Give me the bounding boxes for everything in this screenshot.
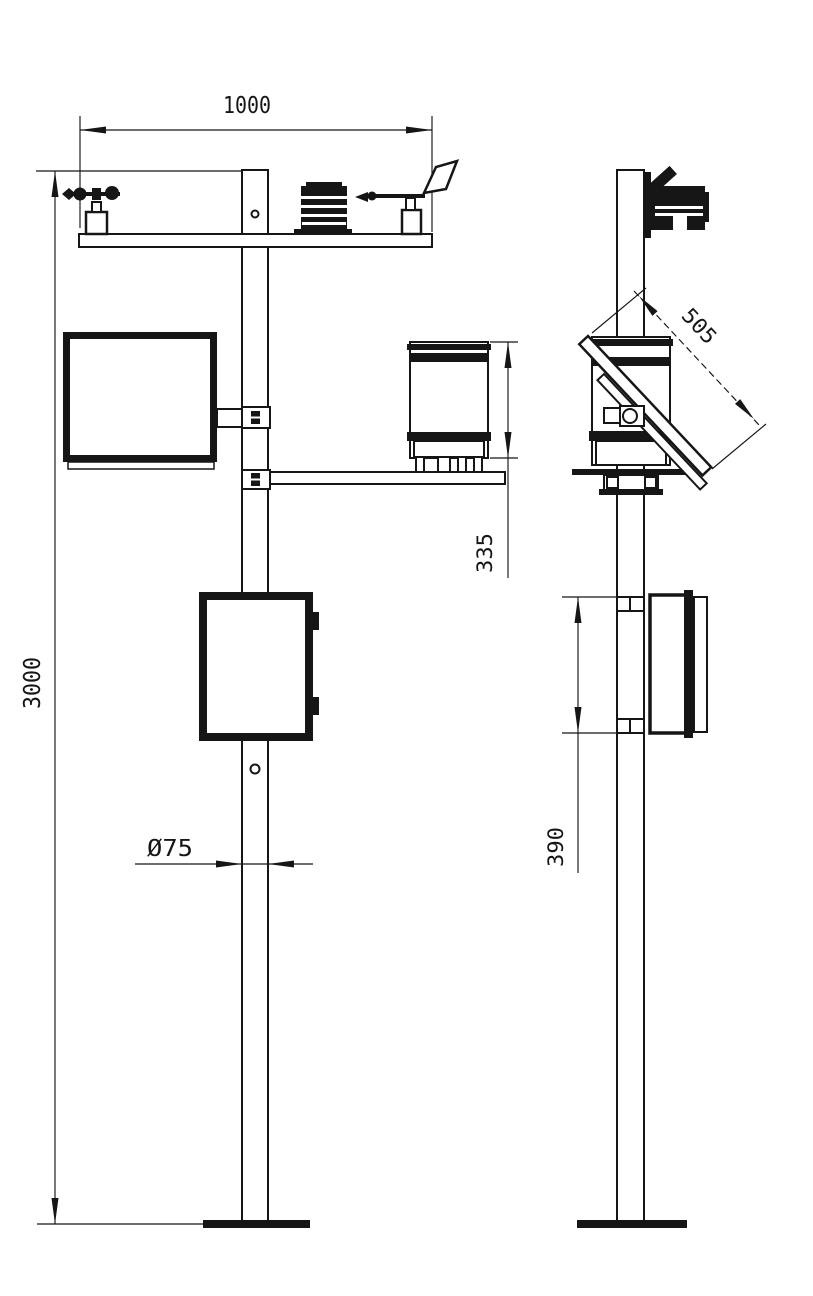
extension-line — [712, 424, 766, 469]
box-hinge — [313, 697, 319, 715]
base-plate-front — [37, 1220, 310, 1228]
dim-arrow-down — [575, 707, 582, 733]
shield-louver — [298, 196, 350, 199]
pole-clamp-upper — [217, 407, 270, 428]
box-hinge — [313, 612, 319, 630]
shield-louver — [298, 205, 350, 208]
crossbar-end — [644, 172, 651, 238]
arm-bar — [268, 472, 505, 484]
solar-panel-front — [67, 336, 215, 470]
sensor-notch — [673, 216, 687, 230]
dim-arrow-right — [406, 127, 432, 134]
dimension-label: 3000 — [20, 657, 46, 709]
gauge-leg — [458, 457, 466, 472]
dim-arrow-down — [52, 1198, 59, 1224]
dim-arrow-up — [575, 597, 582, 623]
dim-arrow-up — [505, 342, 512, 368]
dim-arrow-left — [268, 861, 294, 868]
gauge-rim-band — [407, 344, 491, 350]
gauge-leg — [416, 457, 424, 472]
dim-arrow-down — [505, 432, 512, 458]
technical-drawing-svg: 3000 1000 — [0, 0, 813, 1296]
anemometer-hub — [92, 188, 101, 200]
side-view: 505 390 — [544, 166, 766, 1228]
sensor-slit — [655, 206, 703, 209]
dim-arrow-downright — [735, 399, 754, 419]
mounting-arm-side — [572, 469, 688, 495]
gauge-base — [414, 441, 484, 457]
gauge-leg — [474, 457, 482, 472]
panel-frame — [67, 336, 214, 459]
box-door-edge — [684, 590, 693, 738]
sensor-slit — [655, 213, 703, 216]
anemometer-base — [86, 212, 107, 234]
vane-tail-fin — [424, 161, 457, 193]
dimension-label: 1000 — [223, 93, 271, 119]
vane-post — [406, 198, 415, 210]
front-view: 3000 1000 — [20, 93, 518, 1228]
shield-louver — [298, 214, 350, 217]
mounting-hole — [252, 211, 259, 218]
bolt-slot — [250, 417, 261, 419]
gauge-lower-band — [407, 432, 491, 441]
base-plate — [203, 1220, 310, 1228]
dimension-label: Ø75 — [147, 836, 193, 862]
vane-rod — [363, 194, 425, 198]
dimension-label: 505 — [677, 303, 722, 349]
base-plate-side — [577, 1220, 687, 1228]
dimension-control-box-height: 390 — [544, 597, 618, 873]
bolt-slot — [250, 479, 261, 481]
gauge-base — [596, 441, 666, 465]
control-box-front — [203, 596, 319, 737]
shield-louver — [302, 222, 346, 225]
dimension-label: 335 — [473, 533, 497, 573]
panel-bottom-lip — [68, 462, 214, 469]
mast-pole-side — [617, 170, 644, 1224]
gauge-leg — [438, 457, 450, 472]
wind-sensor-side — [644, 166, 709, 238]
mount-bolt — [623, 409, 637, 423]
clamp-foot — [645, 477, 656, 488]
rain-gauge-front — [407, 342, 491, 472]
dim-arrow-up — [52, 171, 59, 197]
dimension-label: 390 — [544, 827, 568, 867]
sensor-crossbar — [79, 234, 432, 247]
clamp-foot — [607, 477, 618, 488]
box-door-panel — [694, 597, 707, 732]
box-frame — [203, 596, 309, 737]
dim-arrow-right — [216, 861, 242, 868]
cup-anemometer — [62, 186, 120, 234]
panel-mount-plate — [604, 408, 620, 423]
anemometer-cup — [105, 186, 119, 200]
dimension-pole-diameter: Ø75 — [135, 836, 313, 868]
box-body — [650, 595, 687, 733]
vane-base — [402, 210, 421, 234]
mounting-hole — [251, 765, 260, 774]
dim-arrow-left — [80, 127, 106, 134]
radiation-shield — [294, 182, 352, 234]
gauge-top-band — [410, 353, 488, 362]
clamp-band — [599, 489, 663, 495]
weather-station-drawing: 3000 1000 — [0, 0, 813, 1296]
gauge-rim-band — [589, 339, 673, 346]
anemometer-cup — [74, 188, 87, 201]
panel-bracket — [217, 409, 242, 427]
wind-vane — [355, 161, 457, 234]
anemometer-neck — [92, 202, 101, 212]
